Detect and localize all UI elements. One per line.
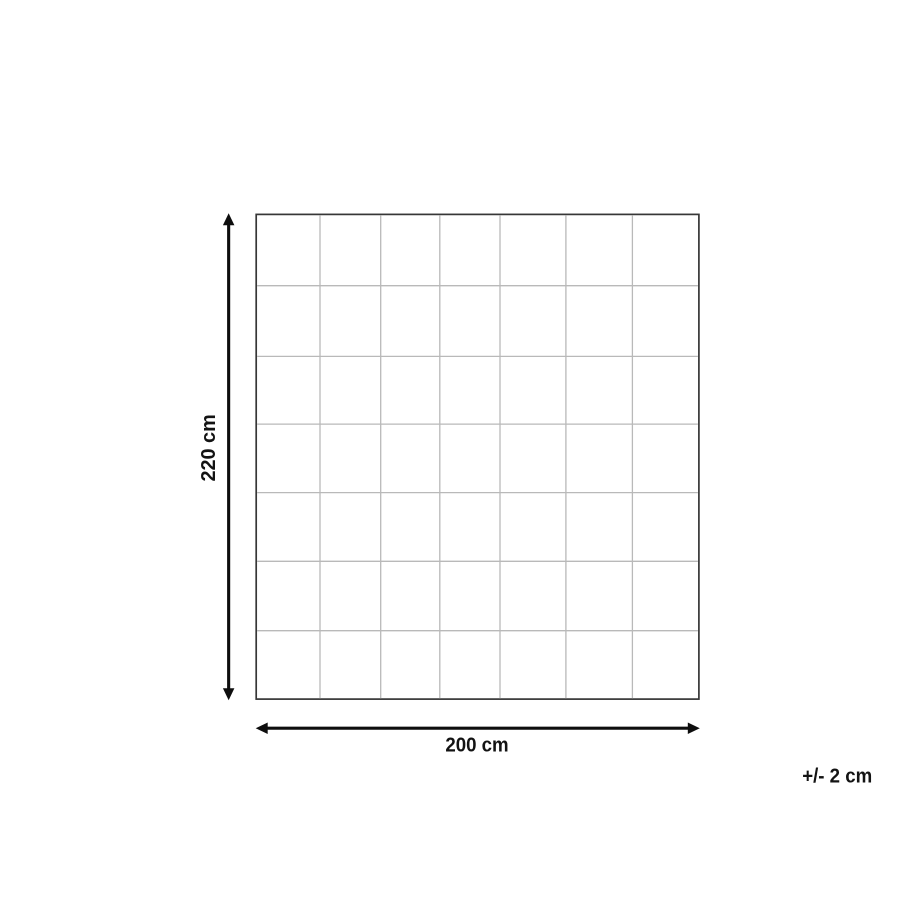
- svg-text:+/- 2 cm: +/- 2 cm: [802, 766, 872, 788]
- svg-text:200 cm: 200 cm: [445, 735, 508, 757]
- svg-text:220 cm: 220 cm: [198, 414, 220, 481]
